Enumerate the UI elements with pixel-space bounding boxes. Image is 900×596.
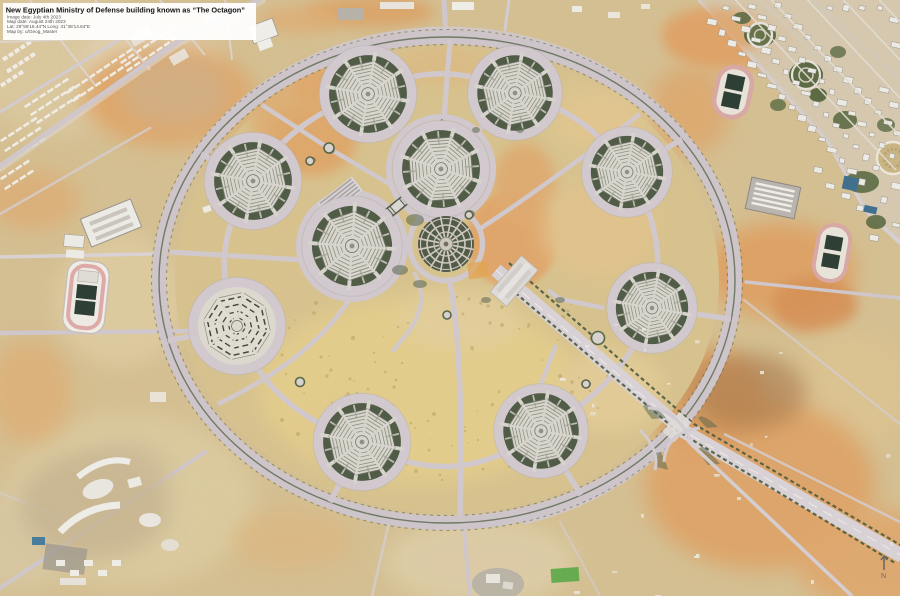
svg-text:Map date: August 24th 2023: Map date: August 24th 2023 [7, 19, 66, 24]
svg-text:Image date: July 4th 2023: Image date: July 4th 2023 [7, 14, 61, 19]
svg-text:Lat: 29°56'16.44"N Long: 31°38: Lat: 29°56'16.44"N Long: 31°38'14.64"E [7, 24, 90, 29]
svg-text:New Egyptian Ministry of Defen: New Egyptian Ministry of Defense buildin… [6, 6, 246, 15]
svg-text:Map by: u/Geog_Master: Map by: u/Geog_Master [7, 29, 58, 34]
svg-text:N: N [881, 573, 886, 580]
